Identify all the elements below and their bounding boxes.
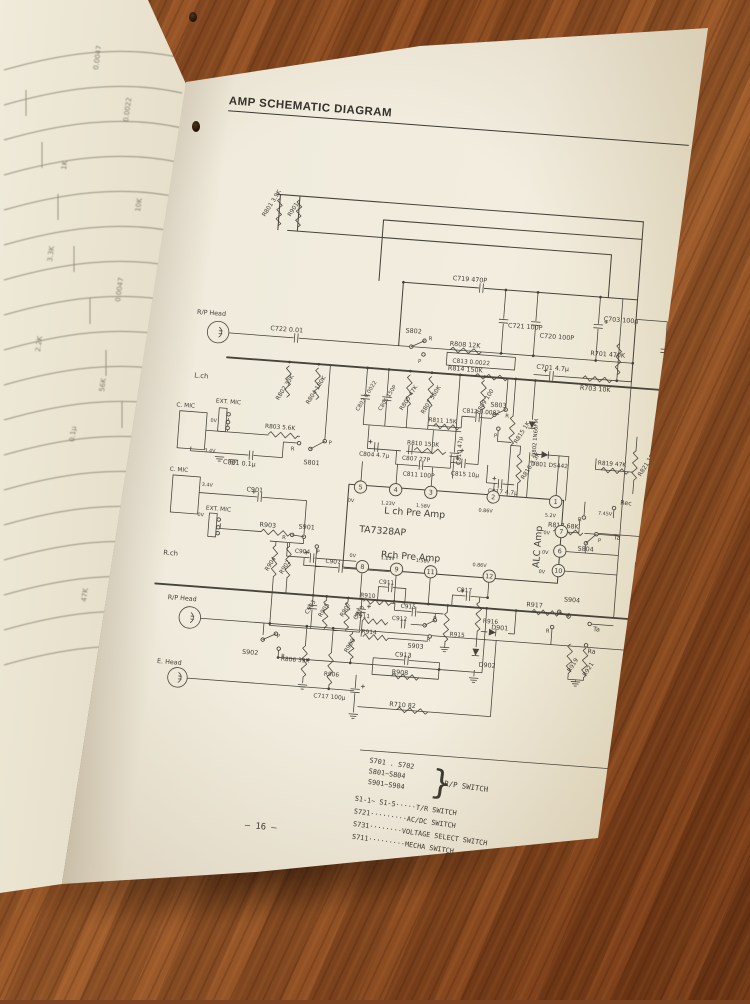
left-page-wire bbox=[4, 121, 182, 140]
left-page-wire bbox=[4, 156, 182, 175]
left-page-label: 0.0047 bbox=[92, 45, 103, 70]
left-page-wire bbox=[4, 51, 182, 70]
left-page-wire bbox=[4, 86, 182, 105]
left-page-wire bbox=[4, 191, 182, 210]
left-page-label: 3.3K bbox=[46, 245, 56, 262]
left-page-wire bbox=[4, 226, 182, 245]
left-page-label: 0.0022 bbox=[122, 97, 133, 122]
left-page-label: 0.1µ bbox=[68, 425, 78, 442]
punch-hole bbox=[192, 121, 200, 132]
left-page-label: 56K bbox=[98, 377, 108, 392]
left-page-wire bbox=[4, 261, 182, 280]
left-page-label: 47K bbox=[80, 587, 90, 602]
left-page-label: 2.2K bbox=[34, 335, 44, 352]
left-page-label: 10K bbox=[134, 197, 144, 212]
punch-hole bbox=[189, 12, 197, 22]
left-page-label: 0.0047 bbox=[114, 277, 125, 302]
left-page-label: 1K bbox=[60, 160, 69, 170]
